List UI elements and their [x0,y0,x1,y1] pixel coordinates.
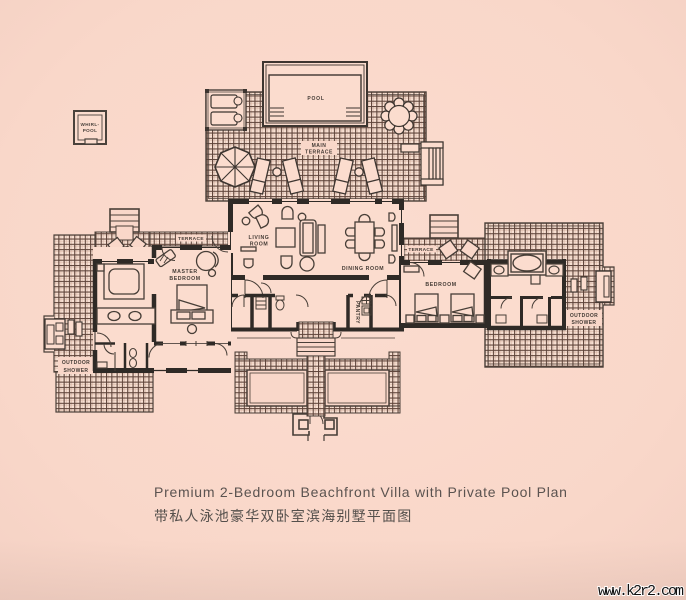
svg-text:OUTDOOR: OUTDOOR [570,313,598,319]
svg-text:SHOWER: SHOWER [64,368,89,374]
svg-text:DINING ROOM: DINING ROOM [342,266,384,272]
svg-text:OUTDOOR: OUTDOOR [62,360,90,366]
svg-text:BEDROOM: BEDROOM [425,282,456,288]
svg-text:POOL: POOL [83,128,98,133]
svg-text:SHOWER: SHOWER [572,320,597,326]
svg-text:BEDROOM: BEDROOM [169,276,200,282]
svg-text:LIVING: LIVING [249,235,270,241]
svg-text:TERRACE: TERRACE [305,150,333,156]
svg-text:Premium 2-Bedroom Beachfront V: Premium 2-Bedroom Beachfront Villa with … [154,484,568,500]
svg-text:MAIN: MAIN [312,143,327,149]
svg-text:TERRACE: TERRACE [408,247,434,253]
svg-text:www.k2r2.com: www.k2r2.com [598,583,684,600]
svg-text:WHIRL-: WHIRL- [81,122,100,127]
svg-text:ROOM: ROOM [250,242,269,248]
svg-text:MASTER: MASTER [172,269,198,275]
svg-text:带私人泳池豪华双卧室滨海别墅平面图: 带私人泳池豪华双卧室滨海别墅平面图 [154,508,412,524]
svg-text:POOL: POOL [307,96,324,102]
svg-text:TERRACE: TERRACE [178,236,204,242]
